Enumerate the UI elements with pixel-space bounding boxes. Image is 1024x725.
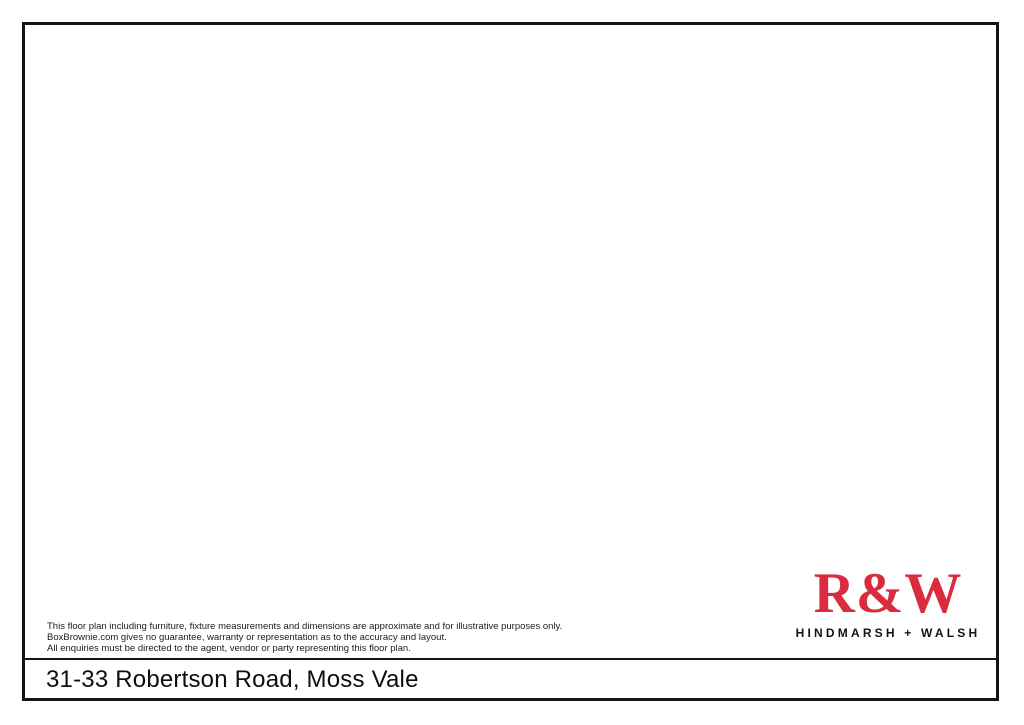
disclaimer-line-1: This floor plan including furniture, fix… bbox=[47, 621, 587, 632]
agency-name: HINDMARSH + WALSH bbox=[792, 626, 984, 640]
agency-logo: R&W HINDMARSH + WALSH bbox=[792, 564, 984, 640]
rw-logo-text: R&W bbox=[792, 564, 984, 624]
floor-plan-page: DRIVEWAYHOUSECARPORTGARAGE This floor pl… bbox=[0, 0, 1024, 725]
divider-line bbox=[22, 658, 999, 660]
disclaimer-text: This floor plan including furniture, fix… bbox=[47, 621, 587, 654]
disclaimer-line-3: All enquiries must be directed to the ag… bbox=[47, 643, 587, 654]
disclaimer-line-2: BoxBrownie.com gives no guarantee, warra… bbox=[47, 632, 587, 643]
property-address: 31-33 Robertson Road, Moss Vale bbox=[46, 666, 419, 694]
